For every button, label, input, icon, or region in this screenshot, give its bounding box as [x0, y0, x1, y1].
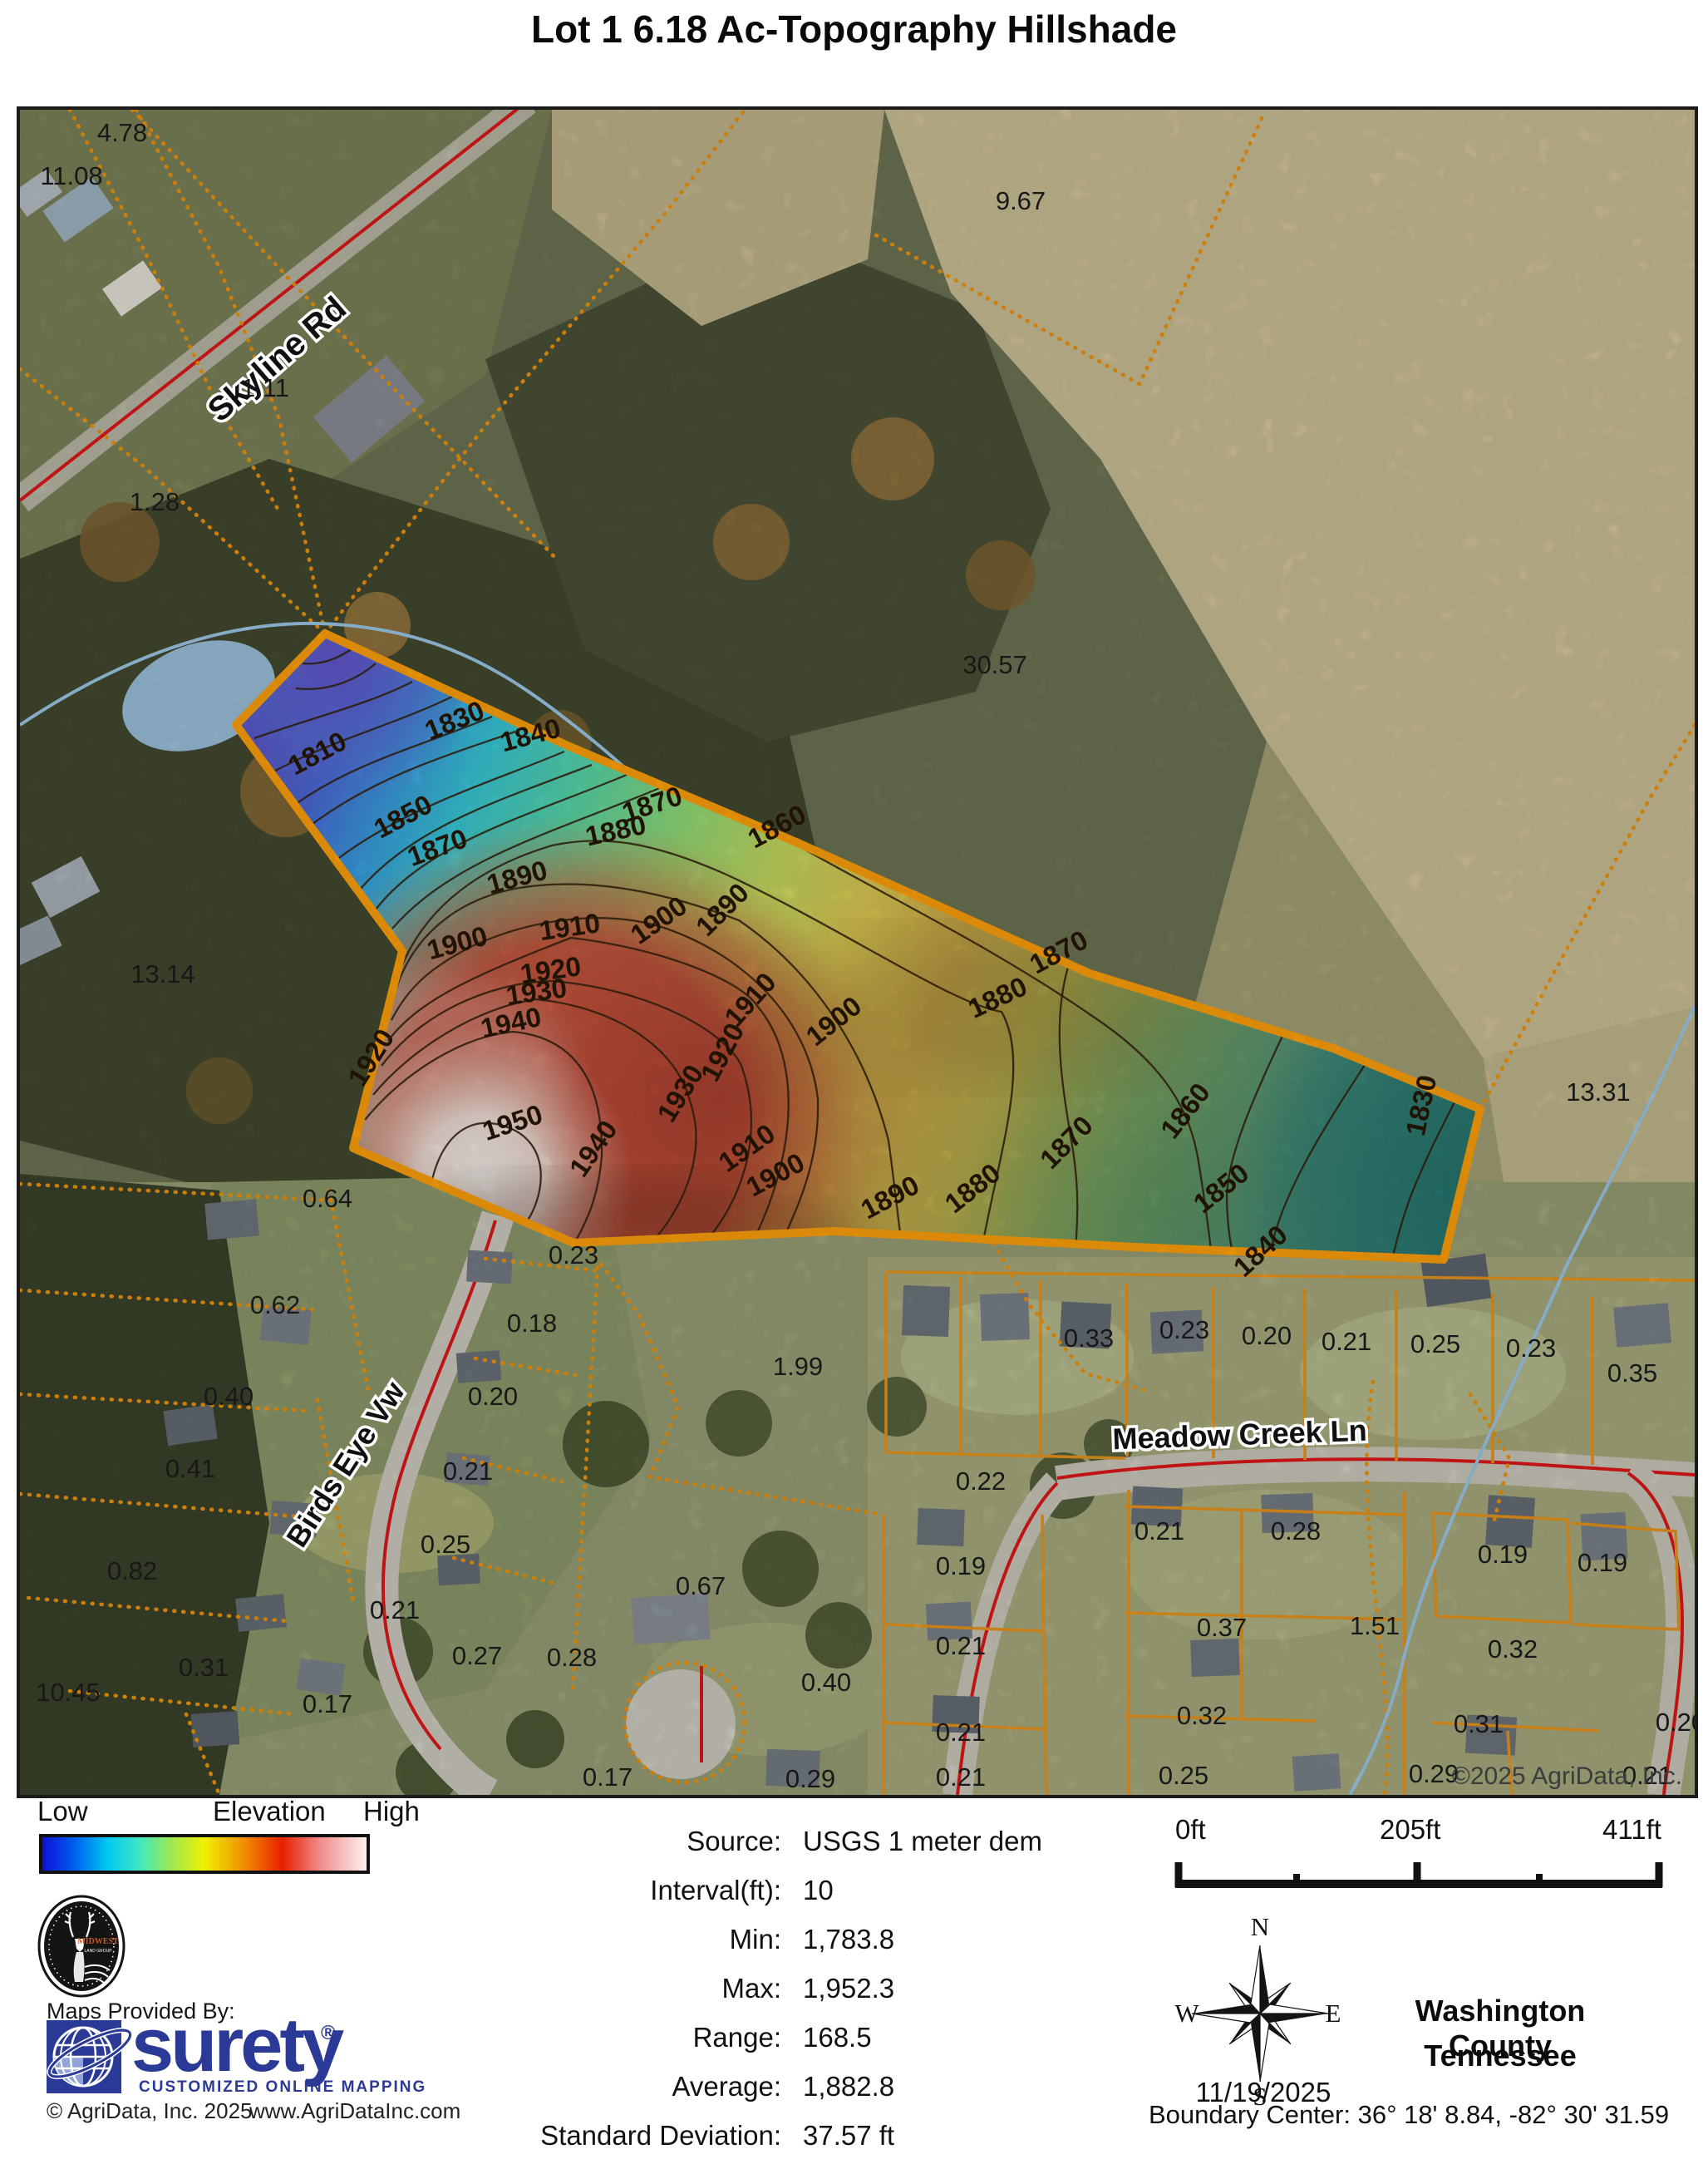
acreage-label: 0.23 [549, 1240, 598, 1269]
acreage-label: 0.35 [1607, 1358, 1657, 1388]
badge-subtitle: LAND GROUP [84, 1949, 112, 1954]
legend-low-label: Low [37, 1796, 88, 1827]
acreage-label: 0.28 [1271, 1516, 1321, 1545]
scalebar-middle-label: 205ft [1380, 1814, 1440, 1846]
acreage-label: 0.28 [547, 1643, 597, 1672]
acreage-label: 0.31 [1454, 1709, 1504, 1738]
badge-title: MIDWEST [77, 1937, 119, 1946]
acreage-label: 0.64 [303, 1184, 352, 1213]
stat-row: Range:168.5 [465, 2022, 1064, 2053]
acreage-label: 0.21 [1135, 1516, 1184, 1545]
page-title: Lot 1 6.18 Ac-Topography Hillshade [0, 7, 1708, 52]
acreage-label: 1.51 [1350, 1611, 1400, 1640]
acreage-label: 0.40 [204, 1382, 253, 1411]
acreage-label: 0.20 [1242, 1321, 1292, 1350]
boundary-center-coordinates: Boundary Center: 36° 18' 8.84, -82° 30' … [1149, 2100, 1669, 2130]
acreage-label: 0.20 [468, 1382, 518, 1411]
map-canvas: Skyline RdBirds Eye VwMeadow Creek Ln 4.… [17, 106, 1698, 1798]
acreage-label: 0.22 [956, 1467, 1006, 1496]
surety-tagline: CUSTOMIZED ONLINE MAPPING [139, 2078, 426, 2097]
stat-value: USGS 1 meter dem [803, 1826, 1042, 1857]
acreage-label: 0.32 [1488, 1634, 1538, 1664]
stat-label: Min: [465, 1924, 781, 1955]
acreage-label: 4.78 [97, 118, 147, 147]
stat-label: Max: [465, 1973, 781, 2004]
agridata-website: www.AgriDataInc.com [249, 2098, 460, 2124]
stat-value: 1,882.8 [803, 2071, 894, 2102]
acreage-label: 0.37 [1197, 1613, 1247, 1642]
stat-row: Max:1,952.3 [465, 1973, 1064, 2004]
acreage-label: 13.31 [1566, 1077, 1631, 1107]
acreage-label: 1.28 [130, 487, 180, 516]
acreage-label: 0.21 [936, 1762, 986, 1792]
acreage-label: 0.41 [165, 1454, 215, 1483]
stat-value: 1,952.3 [803, 1973, 894, 2004]
acreage-label: 0.17 [303, 1689, 352, 1718]
acreage-label: 0.62 [250, 1290, 300, 1319]
stat-value: 10 [803, 1875, 834, 1906]
surety-registered-mark: ® [321, 2022, 336, 2045]
acreage-label: 0.23 [1159, 1315, 1209, 1344]
acreage-label: 0.25 [1159, 1761, 1208, 1790]
stat-value: 37.57 ft [803, 2120, 894, 2152]
acreage-label: 0.17 [583, 1762, 633, 1792]
acreage-label: 0.23 [1506, 1333, 1556, 1363]
acreage-label: 0.31 [179, 1653, 229, 1682]
acreage-label: 0.21 [936, 1631, 986, 1660]
map-image: Skyline RdBirds Eye VwMeadow Creek Ln 4.… [20, 110, 1695, 1795]
midwest-land-group-logo: MIDWEST LAND GROUP [37, 1894, 126, 1999]
acreage-label: 0.25 [1410, 1329, 1460, 1358]
acreage-label: 13.14 [130, 959, 195, 988]
acreage-label: 0.21 [1322, 1327, 1371, 1356]
elevation-gradient-bar [39, 1834, 370, 1874]
acreage-label: 0.19 [1578, 1548, 1627, 1577]
stat-row: Source:USGS 1 meter dem [465, 1826, 1064, 1857]
legend-title: Elevation [213, 1796, 326, 1827]
acreage-label: 0.27 [452, 1641, 502, 1670]
acreage-label: 1.11 [241, 373, 289, 402]
acreage-label: 0.33 [1064, 1324, 1114, 1353]
acreage-label: 30.57 [962, 650, 1027, 679]
stat-value: 168.5 [803, 2022, 872, 2053]
acreage-label: 0.19 [936, 1551, 986, 1580]
scale-bar [1164, 1854, 1679, 1892]
scalebar-end-label: 411ft [1602, 1814, 1661, 1846]
elevation-stats: Source:USGS 1 meter demInterval(ft):10Mi… [465, 1826, 1064, 2169]
acreage-label: 0.21 [936, 1718, 986, 1747]
stat-label: Average: [465, 2071, 781, 2102]
map-watermark: ©2025 AgriData, Inc. [1452, 1762, 1682, 1790]
compass-north-label: N [1251, 1912, 1269, 1941]
acreage-label: 0.67 [676, 1571, 726, 1600]
stat-row: Average:1,882.8 [465, 2071, 1064, 2102]
legend-high-label: High [363, 1796, 420, 1827]
acreage-label: 11.08 [40, 161, 102, 190]
stat-label: Standard Deviation: [465, 2120, 781, 2152]
acreage-label: 0.29 [785, 1764, 835, 1793]
state-name: Tennessee [1363, 2038, 1637, 2073]
stat-label: Interval(ft): [465, 1875, 781, 1906]
stat-value: 1,783.8 [803, 1924, 894, 1955]
acreage-label: 10.45 [36, 1678, 101, 1707]
stat-label: Range: [465, 2022, 781, 2053]
stat-label: Source: [465, 1826, 781, 1857]
stat-row: Interval(ft):10 [465, 1875, 1064, 1906]
acreage-label: 1.99 [773, 1352, 823, 1381]
acreage-label: 0.21 [443, 1457, 493, 1486]
surety-globe-icon [47, 2019, 145, 2097]
acreage-label: 0.25 [421, 1530, 470, 1559]
stat-row: Standard Deviation:37.57 ft [465, 2120, 1064, 2152]
acreage-label: 0.21 [370, 1595, 420, 1624]
acreage-label: 0.40 [801, 1668, 851, 1697]
surety-logo-text: surety [131, 2012, 341, 2078]
acreage-label: 0.82 [107, 1556, 157, 1585]
acreage-label: 0.32 [1177, 1701, 1227, 1730]
stat-row: Min:1,783.8 [465, 1924, 1064, 1955]
acreage-label: 0.18 [507, 1309, 557, 1338]
acreage-label: 0.20 [1656, 1708, 1695, 1737]
acreage-label: 9.67 [996, 186, 1046, 215]
compass-east-label: E [1326, 1999, 1341, 2028]
acreage-label: 0.19 [1478, 1540, 1528, 1569]
compass-west-label: W [1174, 1999, 1199, 2028]
agridata-copyright: © AgriData, Inc. 2025 [47, 2098, 253, 2124]
scalebar-start-label: 0ft [1175, 1814, 1206, 1846]
